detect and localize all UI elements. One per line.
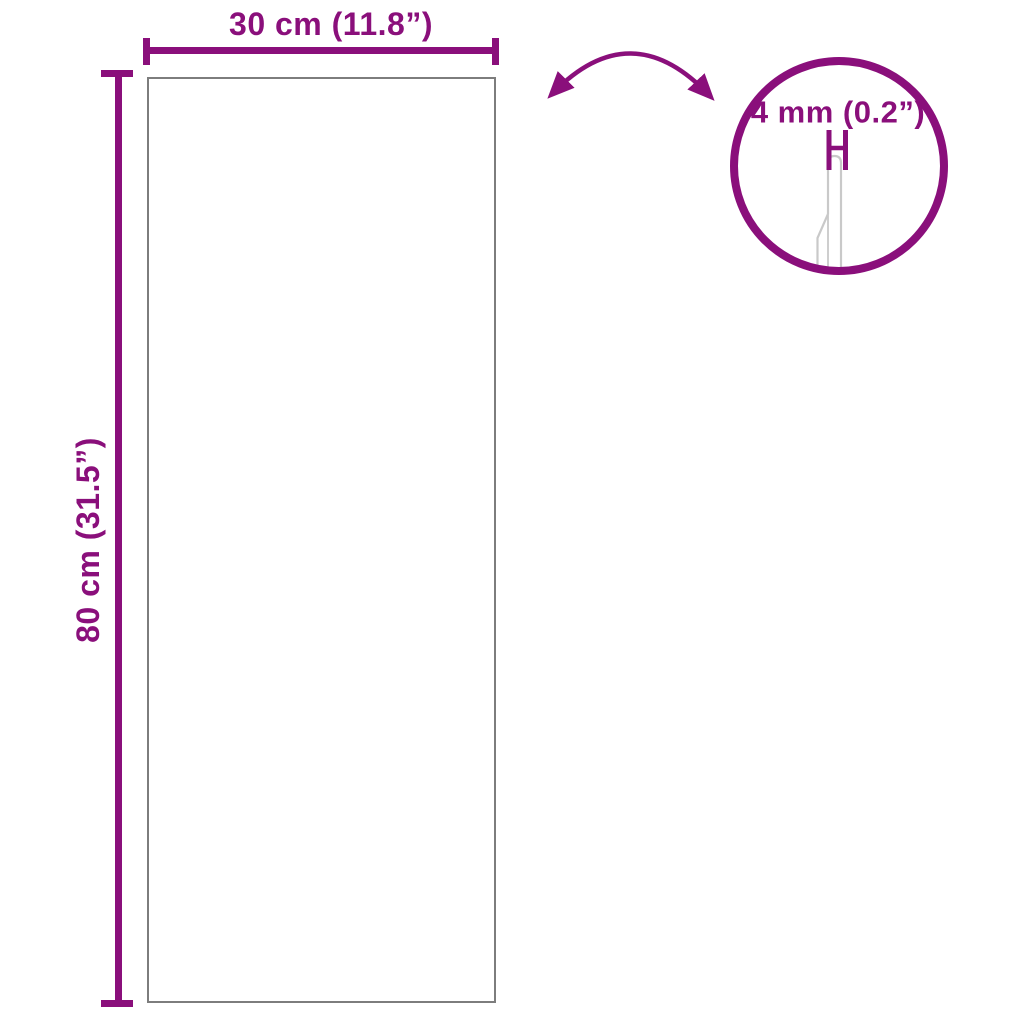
panel-edge-profile	[818, 156, 842, 274]
panel-outline	[147, 77, 496, 1003]
thickness-dimension-marker	[829, 130, 846, 170]
thickness-detail-drawing	[818, 156, 842, 274]
height-dimension-tick-bottom	[101, 1000, 133, 1007]
width-dimension-tick-right	[492, 38, 499, 65]
zoom-circle-fill	[734, 61, 944, 271]
thickness-dimension-label: 4 mm (0.2”)	[751, 97, 925, 128]
height-dimension-line	[115, 73, 122, 1007]
height-dimension-label: 80 cm (31.5”)	[72, 437, 104, 643]
zoom-circle-ring	[734, 61, 944, 271]
curved-double-arrow-icon	[553, 53, 709, 95]
width-dimension-label: 30 cm (11.8”)	[229, 8, 433, 40]
width-dimension-line	[144, 47, 499, 54]
width-dimension-tick-left	[143, 38, 150, 65]
product-dimension-diagram: 30 cm (11.8”) 80 cm (31.5”)	[0, 0, 1024, 1024]
height-dimension-tick-top	[101, 70, 133, 77]
